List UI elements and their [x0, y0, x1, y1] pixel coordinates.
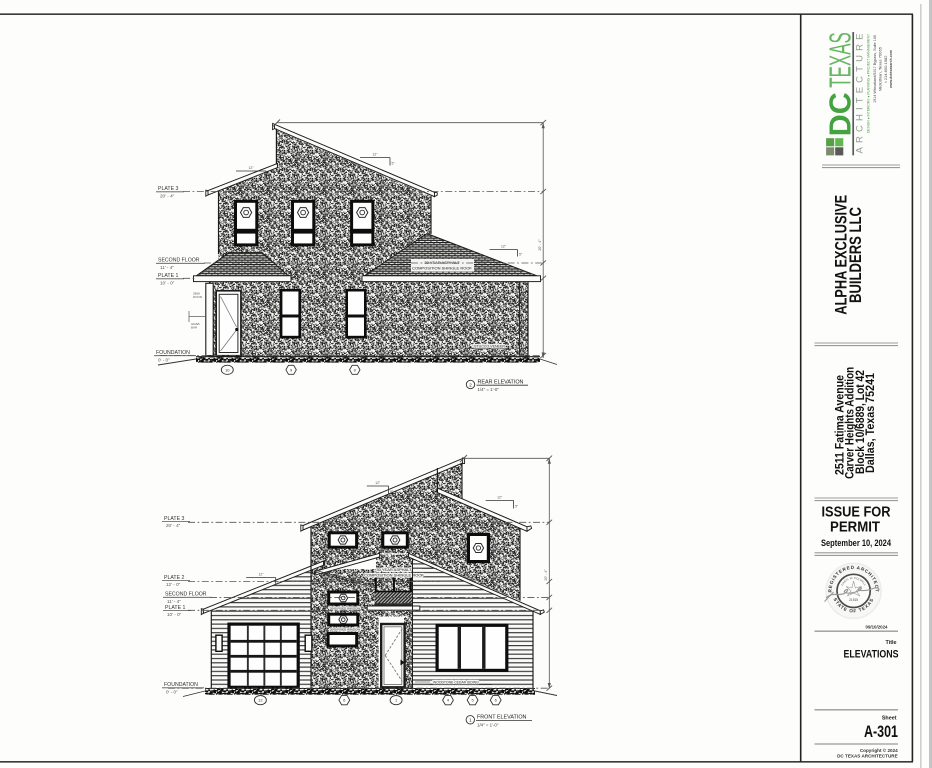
svg-text:PLATE 3: PLATE 3: [158, 186, 178, 192]
svg-text:12": 12": [375, 481, 381, 485]
svg-text:DESIGN ● INTERIORS ● PLANNING: DESIGN ● INTERIORS ● PLANNING ● PROJECT …: [867, 34, 871, 133]
svg-text:10' - 0": 10' - 0": [167, 612, 182, 617]
svg-text:BUILDERS LLC: BUILDERS LLC: [847, 207, 865, 303]
svg-text:PLATE 1: PLATE 1: [158, 273, 178, 279]
svg-text:SECOND FLOOR: SECOND FLOOR: [165, 592, 207, 598]
svg-text:PLATE 1: PLATE 1: [165, 605, 185, 611]
svg-text:BAR: BAR: [191, 326, 198, 330]
svg-text:ISSUE FOR: ISSUE FOR: [822, 505, 891, 521]
svg-text:REAR ELEVATION: REAR ELEVATION: [478, 379, 524, 385]
svg-text:20' - 4": 20' - 4": [544, 569, 548, 581]
svg-text:1/4" = 1'-0": 1/4" = 1'-0": [477, 723, 499, 728]
svg-text:09/10/2024: 09/10/2024: [866, 624, 889, 629]
svg-text:12' - 0": 12' - 0": [166, 582, 181, 587]
svg-text:FOUNDATION: FOUNDATION: [156, 350, 190, 356]
svg-text:12": 12": [258, 573, 264, 577]
svg-text:1914 Wheatland/5317 Bypass, Su: 1914 Wheatland/5317 Bypass, Suite 100: [873, 35, 877, 103]
svg-text:t 214.800.1582: t 214.800.1582: [884, 56, 888, 83]
svg-text:COMPOSITION SHINGLE ROOF: COMPOSITION SHINGLE ROOF: [412, 266, 472, 271]
svg-text:SECOND FLOOR: SECOND FLOOR: [158, 258, 200, 264]
svg-text:STUCCO VENEER: STUCCO VENEER: [474, 345, 505, 349]
svg-text:Title: Title: [886, 640, 897, 646]
svg-text:Copyright © 2024: Copyright © 2024: [860, 747, 898, 753]
svg-text:12": 12": [249, 166, 255, 170]
svg-text:0' - 0": 0' - 0": [158, 357, 170, 362]
svg-text:2040 FIXED WINDOW: 2040 FIXED WINDOW: [330, 628, 361, 632]
svg-text:21515: 21515: [849, 598, 858, 602]
svg-text:FRONT ELEVATION: FRONT ELEVATION: [477, 715, 527, 721]
svg-text:ELEVATIONS: ELEVATIONS: [844, 649, 899, 661]
svg-text:www.dctexasarch.com: www.dctexasarch.com: [889, 50, 893, 89]
svg-text:1: 1: [469, 718, 472, 724]
svg-text:Sheet: Sheet: [882, 715, 897, 721]
svg-text:12": 12": [497, 496, 503, 500]
svg-text:30 YEAR ASPHALT: 30 YEAR ASPHALT: [376, 567, 412, 572]
svg-text:A-301: A-301: [864, 723, 898, 741]
svg-text:Midlothian, Texas 76065: Midlothian, Texas 76065: [879, 47, 883, 91]
svg-text:WOODTONE CEDAR SIDING: WOODTONE CEDAR SIDING: [433, 680, 479, 684]
svg-text:TEXAS: TEXAS: [823, 32, 858, 88]
svg-text:11' - 4": 11' - 4": [160, 265, 174, 270]
svg-text:20' - 4": 20' - 4": [160, 193, 175, 198]
svg-text:COMPOSITION SHINGLE ROOF: COMPOSITION SHINGLE ROOF: [364, 572, 424, 577]
svg-text:30 YEAR ASPHALT: 30 YEAR ASPHALT: [424, 260, 460, 265]
svg-text:DC TEXAS ARCHITECTURE: DC TEXAS ARCHITECTURE: [837, 754, 898, 759]
svg-text:Dallas, Texas 75241: Dallas, Texas 75241: [863, 373, 877, 473]
svg-text:DOOR: DOOR: [193, 295, 203, 299]
svg-text:2: 2: [469, 382, 472, 388]
svg-text:20' - 4": 20' - 4": [538, 239, 542, 251]
svg-text:0' - 0": 0' - 0": [166, 689, 178, 694]
svg-text:12": 12": [501, 245, 507, 249]
svg-text:1/4" = 1'-0": 1/4" = 1'-0": [478, 387, 500, 392]
svg-text:PLATE 2: PLATE 2: [164, 575, 184, 581]
svg-text:FOUNDATION: FOUNDATION: [164, 682, 198, 688]
svg-text:10: 10: [225, 367, 230, 372]
svg-text:DC: DC: [823, 92, 858, 136]
svg-text:20' - 4": 20' - 4": [166, 523, 181, 528]
svg-text:PLATE 3: PLATE 3: [164, 516, 184, 522]
svg-text:PERMIT: PERMIT: [830, 520, 880, 536]
svg-text:11' - 4": 11' - 4": [167, 599, 181, 604]
svg-text:September 10, 2024: September 10, 2024: [821, 538, 891, 548]
svg-text:12: 12: [258, 698, 263, 703]
svg-text:10' - 0": 10' - 0": [160, 280, 175, 285]
svg-text:12": 12": [373, 153, 379, 157]
